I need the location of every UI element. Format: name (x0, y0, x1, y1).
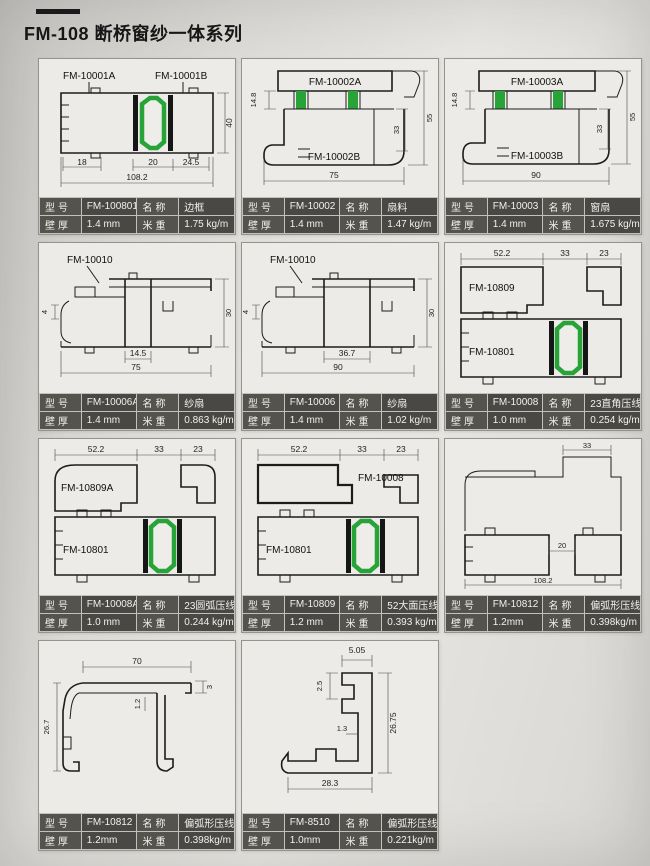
dimensions: 52.2 33 23 (258, 444, 418, 461)
dim-label: 90 (531, 170, 541, 180)
dim-label: 36.7 (339, 348, 356, 358)
spec-thickness-value: 1.2mm (487, 614, 543, 632)
profile-outline (262, 273, 414, 353)
dimensions: 4 30 14.5 75 (40, 279, 233, 377)
spec-weight-value: 0.398kg/m (585, 614, 641, 632)
spec-header-name: 名称 (340, 814, 382, 832)
spec-name-value: 纱扇 (382, 394, 438, 412)
spec-header-thickness: 壁厚 (243, 216, 285, 234)
page-title: FM-108 断桥窗纱一体系列 (24, 20, 243, 46)
profile-label: FM-10002A (309, 77, 362, 88)
spec-thickness-value: 1.4 mm (81, 412, 137, 430)
thermal-break (354, 521, 377, 571)
spec-header-thickness: 壁厚 (243, 614, 285, 632)
spec-model-value: FM-10812 (81, 814, 137, 832)
spec-header-thickness: 壁厚 (243, 832, 285, 850)
spec-model-value: FM-10809 (284, 596, 340, 614)
dim-label: 1.3 (337, 724, 347, 733)
spec-weight-value: 0.393 kg/m (382, 614, 438, 632)
thermal-break (348, 91, 358, 109)
spec-table: 型号 FM-10812 名称 偏弧形压线 壁厚 1.2mm 米重 0.398kg… (39, 813, 235, 850)
spec-header-weight: 米重 (340, 412, 382, 430)
profile-card-fm-10812: 70 3 1.2 26.7 型号 FM-10812 名称 (38, 640, 236, 851)
profile-drawing: FM-10010 4 30 14.5 75 (39, 243, 235, 393)
dim-label: 5.05 (349, 645, 366, 655)
dim-label: 33 (154, 444, 164, 454)
spec-header-thickness: 壁厚 (40, 832, 82, 850)
dim-label: 1.2 (133, 699, 142, 709)
profile-card-fm-10008a: 52.2 33 23 FM-10809A FM-10801 型号 FM-1 (38, 438, 236, 633)
spec-header-model: 型号 (40, 596, 82, 614)
profile-drawing: 5.05 2.5 1.3 26.75 28.3 (242, 641, 438, 813)
profile-outline (282, 673, 372, 773)
dim-label: 26.75 (388, 712, 398, 734)
profile-label: FM-10010 (67, 255, 113, 266)
spec-header-model: 型号 (40, 814, 82, 832)
spec-header-model: 型号 (40, 198, 82, 216)
dim-label: 18 (77, 157, 87, 167)
spec-header-model: 型号 (446, 198, 488, 216)
spec-header-weight: 米重 (543, 614, 585, 632)
profile-label: FM-10809A (61, 483, 114, 494)
dim-label: 20 (148, 157, 158, 167)
dim-label: 52.2 (291, 444, 308, 454)
spec-model-value: FM-10812 (487, 596, 543, 614)
spec-weight-value: 1.47 kg/m (382, 216, 438, 234)
spec-thickness-value: 1.2mm (81, 832, 137, 850)
spec-table: 型号 FM-10006 名称 纱扇 壁厚 1.4 mm 米重 1.02 kg/m (242, 393, 438, 430)
spec-header-model: 型号 (446, 596, 488, 614)
profile-labels: FM-10010 (67, 255, 113, 283)
spec-header-name: 名称 (543, 198, 585, 216)
profile-label: FM-10801 (469, 347, 515, 358)
spec-header-name: 名称 (340, 596, 382, 614)
spec-table: 型号 FM-10812 名称 偏弧形压线 壁厚 1.2mm 米重 0.398kg… (445, 595, 641, 632)
spec-header-name: 名称 (137, 198, 179, 216)
dim-label: 33 (560, 248, 570, 258)
spec-table: 型号 FM-10008A 名称 23圆弧压线 壁厚 1.0 mm 米重 0.24… (39, 595, 235, 632)
spec-header-weight: 米重 (340, 614, 382, 632)
dim-label: 75 (131, 362, 141, 372)
profile-labels: FM-10809 FM-10801 (469, 283, 515, 358)
profile-label: FM-10008 (358, 473, 404, 484)
spec-table: 型号 FM-10002 名称 扇料 壁厚 1.4 mm 米重 1.47 kg/m (242, 197, 438, 234)
spec-name-value: 扇料 (382, 198, 438, 216)
spec-header-name: 名称 (137, 596, 179, 614)
spec-weight-value: 0.221kg/m (382, 832, 438, 850)
spec-model-value: FM-100801 (81, 198, 137, 216)
profile-drawing: 70 3 1.2 26.7 (39, 641, 235, 813)
spec-header-weight: 米重 (340, 832, 382, 850)
spec-thickness-value: 1.2 mm (284, 614, 340, 632)
dim-label: 4 (242, 310, 250, 314)
dim-label: 33 (583, 441, 591, 450)
spec-table: 型号 FM-10006A 名称 纱扇 壁厚 1.4 mm 米重 0.863 kg… (39, 393, 235, 430)
profile-outline (61, 273, 211, 353)
profile-labels: FM-10002A FM-10002B (308, 77, 362, 163)
spec-header-model: 型号 (446, 394, 488, 412)
profile-label: FM-10801 (63, 545, 109, 556)
profile-card-fm-10006: FM-10010 4 30 36.7 90 (241, 242, 439, 431)
profile-labels: FM-10809A FM-10801 (61, 483, 114, 556)
dim-label: 3 (205, 685, 214, 689)
spec-header-weight: 米重 (340, 216, 382, 234)
spec-name-value: 窗扇 (585, 198, 641, 216)
dim-label: 14.8 (450, 93, 459, 108)
dimensions: 5.05 2.5 (315, 645, 372, 699)
profile-card-fm-100801: FM-10001A FM-10001B 18 20 24.5 108.2 (38, 58, 236, 235)
spec-header-weight: 米重 (137, 216, 179, 234)
profile-label: FM-10801 (266, 545, 312, 556)
dimensions: 1.2 26.7 (42, 683, 145, 771)
profile-label: FM-10002B (308, 152, 361, 163)
dimensions: 33 (563, 441, 611, 455)
dimensions: 52.2 33 23 (461, 248, 621, 265)
spec-header-name: 名称 (340, 198, 382, 216)
dim-label: 70 (132, 656, 142, 666)
spec-weight-value: 1.75 kg/m (179, 216, 235, 234)
profile-drawing: FM-10003A FM-10003B 14.8 33 55 90 (445, 59, 641, 197)
spec-header-thickness: 壁厚 (40, 216, 82, 234)
profile-label: FM-10010 (270, 255, 316, 266)
spec-name-value: 偏弧形压线 (585, 596, 641, 614)
spec-header-name: 名称 (543, 596, 585, 614)
thermal-break (142, 98, 164, 148)
dimensions: 1.3 26.75 28.3 (288, 673, 398, 793)
profile-card-fm-10002: FM-10002A FM-10002B 14.8 33 55 75 型号 FM-… (241, 58, 439, 235)
spec-thickness-value: 1.0 mm (487, 412, 543, 430)
spec-name-value: 纱扇 (179, 394, 235, 412)
spec-name-value: 边框 (179, 198, 235, 216)
dim-label: 28.3 (322, 778, 339, 788)
thermal-break (296, 91, 306, 109)
dimensions: 14.8 33 55 75 (249, 71, 434, 185)
dim-label: 30 (224, 309, 233, 317)
spec-header-thickness: 壁厚 (446, 216, 488, 234)
profile-card-fm-10006a: FM-10010 4 30 14.5 75 (38, 242, 236, 431)
profile-outline (465, 457, 621, 582)
spec-thickness-value: 1.4 mm (487, 216, 543, 234)
dim-label: 40 (224, 118, 234, 128)
spec-table: 型号 FM-10809 名称 52大面压线 壁厚 1.2 mm 米重 0.393… (242, 595, 438, 632)
spec-header-thickness: 壁厚 (243, 412, 285, 430)
dim-label: 108.2 (534, 576, 553, 585)
spec-header-thickness: 壁厚 (446, 614, 488, 632)
dim-label: 52.2 (494, 248, 511, 258)
spec-table: 型号 FM-8510 名称 偏弧形压线 壁厚 1.0mm 米重 0.221kg/… (242, 813, 438, 850)
dim-label: 24.5 (183, 157, 200, 167)
dim-label: 55 (425, 114, 434, 122)
dimensions: 52.2 33 23 (55, 444, 215, 461)
dim-label: 108.2 (126, 172, 148, 182)
profile-label: FM-10001B (155, 71, 208, 82)
spec-table: 型号 FM-10008 名称 23直角压线 壁厚 1.0 mm 米重 0.254… (445, 393, 641, 430)
spec-thickness-value: 1.0 mm (81, 614, 137, 632)
spec-header-model: 型号 (40, 394, 82, 412)
spec-name-value: 偏弧形压线 (179, 814, 235, 832)
spec-weight-value: 0.244 kg/m (179, 614, 235, 632)
dim-label: 14.8 (249, 93, 258, 108)
profile-labels: FM-10001A FM-10001B (63, 71, 208, 93)
dimensions: 70 3 (83, 656, 214, 693)
thermal-break (553, 91, 563, 109)
spec-weight-value: 0.254 kg/m (585, 412, 641, 430)
spec-header-name: 名称 (137, 814, 179, 832)
dim-label: 52.2 (88, 444, 105, 454)
spec-header-model: 型号 (243, 394, 285, 412)
spec-weight-value: 0.398kg/m (179, 832, 235, 850)
spec-thickness-value: 1.4 mm (81, 216, 137, 234)
spec-model-value: FM-10003 (487, 198, 543, 216)
profile-drawing: 52.2 33 23 FM-10008 FM-10801 (242, 439, 438, 595)
profile-grid: FM-10001A FM-10001B 18 20 24.5 108.2 (38, 58, 642, 851)
spec-header-weight: 米重 (543, 412, 585, 430)
dim-label: 30 (427, 309, 436, 317)
profile-card-fm-10008: 52.2 33 23 FM-10809 FM-10801 型号 FM-10 (444, 242, 642, 431)
spec-header-thickness: 壁厚 (40, 412, 82, 430)
spec-model-value: FM-10008A (81, 596, 137, 614)
thermal-break (495, 91, 505, 109)
dim-label: 20 (558, 541, 566, 550)
profile-drawing: 52.2 33 23 FM-10809 FM-10801 (445, 243, 641, 393)
dim-label: 2.5 (315, 681, 324, 691)
dim-label: 26.7 (42, 720, 51, 735)
title-dash (36, 9, 80, 14)
spec-model-value: FM-10006A (81, 394, 137, 412)
dim-label: 23 (396, 444, 406, 454)
profile-labels: FM-10003A FM-10003B (511, 77, 564, 162)
profile-card-fm-10003: FM-10003A FM-10003B 14.8 33 55 90 型号 FM-… (444, 58, 642, 235)
dim-label: 23 (599, 248, 609, 258)
profile-card-fm-10812-assembly: 33 20 108.2 型号 FM-10812 名称 偏弧形压线 (444, 438, 642, 633)
profile-drawing: FM-10001A FM-10001B 18 20 24.5 108.2 (39, 59, 235, 197)
dim-label: 4 (40, 310, 49, 314)
spec-table: 型号 FM-100801 名称 边框 壁厚 1.4 mm 米重 1.75 kg/… (39, 197, 235, 234)
spec-header-thickness: 壁厚 (40, 614, 82, 632)
spec-name-value: 23圆弧压线 (179, 596, 235, 614)
spec-model-value: FM-8510 (284, 814, 340, 832)
profile-drawing: 33 20 108.2 (445, 439, 641, 595)
dim-label: 33 (357, 444, 367, 454)
profile-label: FM-10003B (511, 151, 564, 162)
dim-label: 55 (628, 113, 637, 121)
spec-weight-value: 1.02 kg/m (382, 412, 438, 430)
spec-header-weight: 米重 (137, 614, 179, 632)
dim-label: 33 (392, 126, 401, 134)
dimensions: 4 30 36.7 90 (242, 279, 436, 377)
spec-model-value: FM-10002 (284, 198, 340, 216)
spec-weight-value: 1.675 kg/m (585, 216, 641, 234)
spec-header-model: 型号 (243, 596, 285, 614)
profile-outline (63, 683, 191, 771)
spec-header-name: 名称 (340, 394, 382, 412)
spec-model-value: FM-10008 (487, 394, 543, 412)
dim-label: 90 (333, 362, 343, 372)
spec-thickness-value: 1.0mm (284, 832, 340, 850)
spec-header-model: 型号 (243, 814, 285, 832)
thermal-break (151, 521, 174, 571)
spec-name-value: 偏弧形压线 (382, 814, 438, 832)
profile-label: FM-10001A (63, 71, 116, 82)
spec-name-value: 23直角压线 (585, 394, 641, 412)
thermal-break (557, 323, 580, 373)
spec-thickness-value: 1.4 mm (284, 412, 340, 430)
spec-header-model: 型号 (243, 198, 285, 216)
spec-header-thickness: 壁厚 (446, 412, 488, 430)
dim-label: 75 (329, 170, 339, 180)
profile-labels: FM-10010 (270, 255, 316, 283)
profile-outline (61, 88, 213, 158)
spec-header-weight: 米重 (543, 216, 585, 234)
profile-drawing: FM-10010 4 30 36.7 90 (242, 243, 438, 393)
dim-label: 14.5 (130, 348, 147, 358)
profile-drawing: 52.2 33 23 FM-10809A FM-10801 (39, 439, 235, 595)
profile-label: FM-10809 (469, 283, 515, 294)
spec-header-name: 名称 (543, 394, 585, 412)
spec-header-weight: 米重 (137, 412, 179, 430)
spec-model-value: FM-10006 (284, 394, 340, 412)
spec-name-value: 52大面压线 (382, 596, 438, 614)
profile-card-fm-10809: 52.2 33 23 FM-10008 FM-10801 型号 FM-10 (241, 438, 439, 633)
spec-table: 型号 FM-10003 名称 窗扇 壁厚 1.4 mm 米重 1.675 kg/… (445, 197, 641, 234)
profile-label: FM-10003A (511, 77, 564, 88)
dim-label: 33 (595, 125, 604, 133)
spec-header-name: 名称 (137, 394, 179, 412)
spec-weight-value: 0.863 kg/m (179, 412, 235, 430)
spec-header-weight: 米重 (137, 832, 179, 850)
spec-thickness-value: 1.4 mm (284, 216, 340, 234)
profile-card-fm-8510: 5.05 2.5 1.3 26.75 28.3 型号 FM-8510 名称 偏 (241, 640, 439, 851)
dim-label: 23 (193, 444, 203, 454)
profile-drawing: FM-10002A FM-10002B 14.8 33 55 75 (242, 59, 438, 197)
